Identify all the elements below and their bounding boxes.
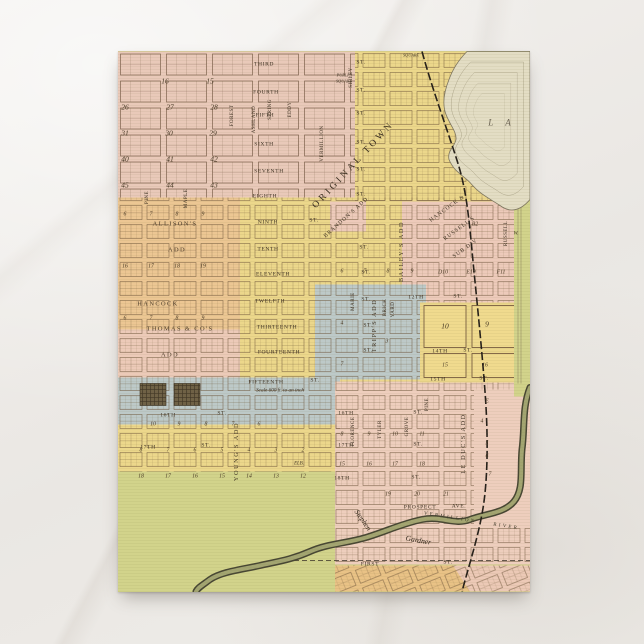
map-label: FIFTEENTH [248,380,283,386]
map-label: PUBLIC [336,73,352,78]
lot-number: 16 [161,77,169,86]
map-label: ST. [463,348,472,354]
map-label: TENTH [257,247,278,253]
map-label: PROSPECT [404,505,436,511]
map-label: ST. [443,560,452,566]
lot-number: 29 [209,129,217,138]
map-label: FOURTH [253,90,279,96]
plat-map: THIRDST.FOURTHST.FIFTHST.SIXTHST.SEVENTH… [118,51,530,592]
lot-number: E [484,399,489,405]
map-label: GROVE [405,417,410,437]
lot-number: B2 [472,222,479,228]
map-label: PINE [425,398,430,411]
lot-number: 40 [121,155,129,164]
map-label: HANCOCK [137,301,178,308]
lot-number: 43 [210,181,218,190]
map-label: ST. [356,111,365,117]
map-label: ST. [479,376,488,382]
lot-number: 18 [138,474,144,480]
map-label: LE DUC'S ADD [460,413,467,474]
lot-number: 41 [166,155,174,164]
lot-number: 9 [368,432,371,438]
map-label: BAILEY'S ADD [398,221,405,282]
lot-number: 31 [120,129,129,138]
map-label: ST. [359,245,368,251]
map-label: ST. [413,442,422,448]
map-label: YARD [391,302,396,318]
map-label: VERMILLION [320,125,325,161]
map-label: SQUARE [403,53,419,58]
lot-number: 10 [392,432,398,438]
lot-number: 6 [124,212,127,218]
lot-number: 16 [482,363,488,369]
map-label: THOMAS & CO'S [147,326,214,333]
lot-number: 2 [302,448,305,454]
lot-number: 9 [202,316,205,322]
map-label: ST. [309,218,318,224]
lot-number: 8 [176,212,179,218]
map-label: ST. [361,297,370,303]
lot-number: 8 [205,422,208,428]
map-label: TYLER [378,420,383,439]
lot-number: 18 [419,462,425,468]
block-16 [472,354,516,378]
lot-number: 5 [486,441,489,447]
map-label: THIRD [254,62,274,68]
lot-number: 11 [419,432,424,438]
lot-number: 3 [385,339,389,345]
lot-number: 45 [121,181,129,190]
lot-number: 15 [219,474,225,480]
map-label: ST. [453,294,462,300]
lot-number: E10 [465,270,475,276]
map-label: TWELFTH [255,299,285,305]
lot-number: 16 [122,264,128,270]
map-label: ALLISON'S [153,221,198,228]
lot-number: 4 [248,447,251,454]
map-postcard: THIRDST.FOURTHST.FIFTHST.SIXTHST.SEVENTH… [118,51,530,592]
lot-number: 8 [387,269,390,275]
map-label: ADD [168,247,186,254]
map-label: ST. [356,88,365,94]
lot-number: 20 [414,492,420,498]
map-label: YOUNG'S ADD [233,422,240,481]
lot-number: 5 [221,448,224,454]
lot-number: F11 [496,270,506,276]
lot-number: 10 [441,322,449,331]
map-label: BRICK [383,299,388,317]
map-label: SIXTH [254,142,273,148]
map-label: NINTH [258,220,278,226]
lot-number: 8 [341,432,344,438]
lot-number: 28 [210,103,218,112]
map-label: SPRING [268,99,273,120]
lot-number: 27 [166,103,174,112]
map-label: FOREST [230,105,235,127]
lot-number: 4 [341,320,344,327]
map-label: ST. [356,60,365,66]
lot-number: 44 [166,181,174,190]
lot-number: 16 [192,474,198,480]
map-label: ST. [413,410,422,416]
lot-number: 9 [411,269,414,275]
map-label: AVE. [452,504,467,510]
lot-number: 13 [273,474,279,480]
map-label: SIBLEY [349,67,354,88]
lot-number: 6 [486,454,489,460]
map-label: SQUARE [336,79,352,84]
map-label: EDDY [288,102,293,118]
lot-number: 4 [481,418,484,425]
lot-number: 15 [339,462,345,468]
map-label: ST. [411,475,420,481]
green-margin-strip [514,192,530,397]
lot-number: 30 [164,129,173,138]
lot-number: 18 [174,264,180,270]
map-label: FIRST [361,562,379,568]
map-label: 15TH [430,377,445,383]
map-label: 12TH [408,295,423,301]
map-label: W. [514,232,519,237]
map-label: ADD [161,352,179,359]
lot-number: 9 [178,422,181,428]
map-label: THIRTEENTH [257,325,297,331]
map-label: ST. [201,443,210,449]
building-engraving [140,384,166,406]
lot-number: 12 [300,474,306,480]
map-label: MAPLE [184,189,189,208]
map-label: FLORENCE [351,417,356,447]
lot-number: 6 [194,448,197,454]
map-label: RUSSELL [504,221,509,246]
map-label: EIGHTH [253,194,277,200]
map-label: SEVENTH [254,169,284,175]
lot-number: 15 [442,363,448,369]
lot-number: 6 [341,269,344,275]
lot-number: 15 [206,77,214,86]
lot-number: 42 [210,155,218,164]
map-label: PINE [145,191,150,204]
lot-number: 8 [140,448,143,454]
map-label: 17TH [140,445,155,451]
map-label: ASHLAND [252,106,257,133]
lot-number: 9 [202,212,205,218]
lot-number: 21 [443,492,449,498]
lot-number: 6 [124,316,127,322]
map-label: 18TH [334,476,349,482]
lot-number: 9 [485,320,489,329]
lot-number: 16 [366,462,372,468]
map-label: 14TH [432,349,447,355]
lot-number: 10 [150,422,156,428]
map-label: TRIPP'S ADD [371,299,378,353]
map-label: ST. [356,140,365,146]
lot-number: 26 [121,103,129,112]
lot-number: 19 [385,492,391,498]
map-label: ELEVENTH [256,272,290,278]
lot-number: 6 [258,422,261,428]
map-label: 16TH [338,411,353,417]
building-engraving [174,384,200,406]
map-label: ELB. [293,462,304,467]
map-label: Scale 600 ft. to an inch [256,387,304,394]
lot-number: 8 [176,316,179,322]
map-label: MARIE [351,292,356,311]
lot-number: D10 [437,270,448,276]
map-label: ST. [217,411,226,417]
map-label: 16TH [160,413,175,419]
map-label: ST. [310,378,319,384]
lot-number: 14 [246,473,252,480]
lot-number: 3 [274,448,278,454]
lot-number: 19 [200,264,206,270]
map-label: L A [487,118,515,128]
marble-background: THIRDST.FOURTHST.FIFTHST.SIXTHST.SEVENTH… [0,0,644,644]
map-label: FOURTEENTH [258,350,300,356]
